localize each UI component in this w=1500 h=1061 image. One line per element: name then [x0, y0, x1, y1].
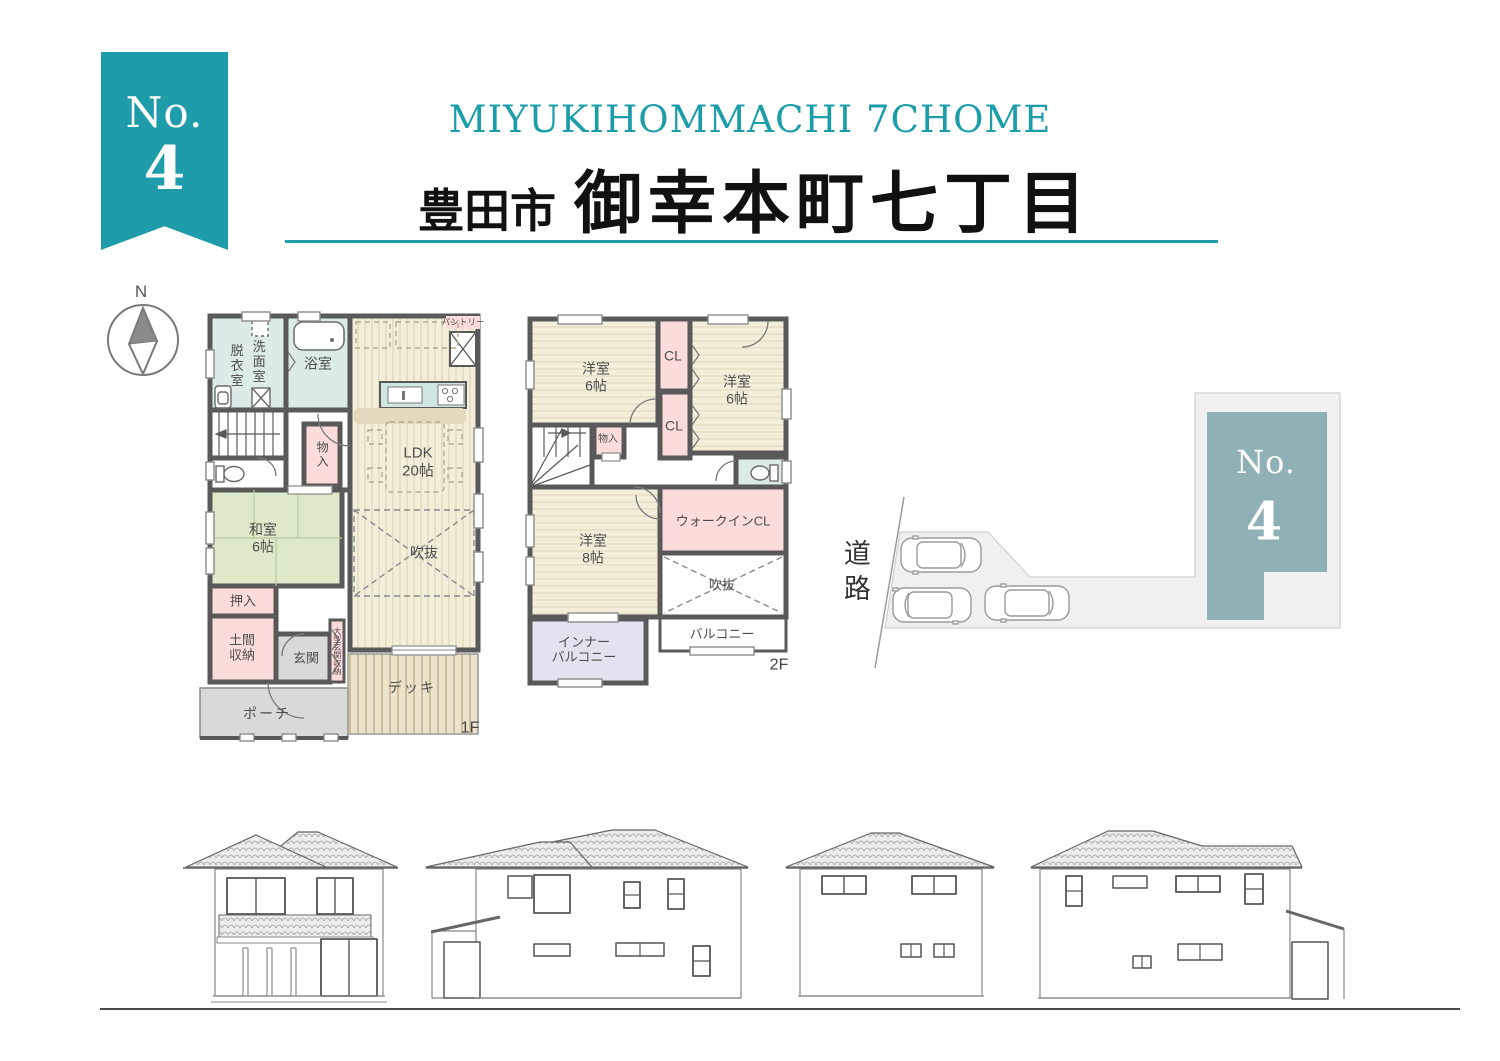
ribbon-number: 4: [101, 139, 228, 199]
lot-number-ribbon: No. 4: [101, 52, 228, 250]
page-title: 豊田市 御幸本町七丁目: [418, 148, 1092, 247]
title-underline: [285, 240, 1218, 243]
room-label-datsui: 脱衣室: [228, 344, 243, 389]
site-lot-number: 4: [1246, 491, 1282, 552]
car-1: [901, 536, 981, 574]
elevation-1: [183, 832, 398, 1002]
elevation-3: [786, 833, 994, 996]
room-label-void-2f: 吹抜: [709, 577, 735, 592]
closet-label-mid: CL: [665, 418, 683, 435]
room-label-washitsu: 和室 6帖: [249, 521, 277, 554]
car-2: [893, 588, 971, 624]
bathtub: [294, 322, 344, 350]
room-label-doma: 土間 収納: [229, 633, 255, 664]
compass-icon: [98, 296, 190, 382]
room-label-deck: デッキ: [388, 680, 436, 697]
room-label-void-1f: 吹抜: [410, 545, 438, 562]
floor2-tag: 2F: [770, 657, 789, 676]
room-label-bath: 浴室: [304, 356, 332, 373]
elevation-4: [1031, 831, 1344, 999]
room-label-ogata: 大型玄関収納: [332, 627, 341, 675]
floor1-tag: 1F: [461, 720, 480, 739]
road-label: 道路: [838, 539, 870, 609]
room-label-walkin: ウォークインCL: [676, 513, 771, 528]
room-label-bed6r: 洋室 6帖: [723, 373, 751, 406]
city-label: 豊田市: [418, 175, 556, 241]
room-label-oshiire: 押入: [230, 593, 256, 608]
closet-label-top: CL: [664, 348, 682, 365]
room-label-bed8: 洋室 8帖: [579, 532, 607, 565]
room-label-storage-2f: 物入: [598, 434, 618, 446]
room-label-bed6l: 洋室 6帖: [582, 360, 610, 393]
toilet-fixture-2f: [751, 465, 778, 481]
elevations: [0, 788, 1500, 1028]
stairs-2f: [530, 425, 592, 487]
room-label-porch: ポーチ: [243, 706, 291, 723]
site-plan: [830, 385, 1440, 675]
ribbon-no-label: No.: [101, 88, 228, 137]
room-label-balcony: バルコニー: [690, 626, 755, 641]
room-label-storage-1f: 物入: [315, 441, 329, 469]
room-label-senmen: 洗面室: [250, 340, 265, 385]
elevation-2: [426, 830, 748, 998]
room-label-ldk: LDK 20帖: [402, 444, 434, 479]
compass-north-label: N: [135, 282, 147, 302]
room-label-pantry: パントリー: [442, 317, 485, 327]
romanized-title: MIYUKIHOMMACHI 7CHOME: [449, 98, 1052, 141]
toilet-fixture-1f: [216, 466, 244, 482]
room-label-inner-balcony: インナー バルコニー: [552, 635, 617, 666]
district-label: 御幸本町七丁目: [574, 148, 1092, 247]
car-3: [985, 584, 1069, 622]
site-lot-no-label: No.: [1236, 444, 1296, 482]
flyer-page: No. 4 MIYUKIHOMMACHI 7CHOME 豊田市 御幸本町七丁目 …: [0, 0, 1500, 1061]
room-label-genkan: 玄関: [293, 650, 319, 665]
